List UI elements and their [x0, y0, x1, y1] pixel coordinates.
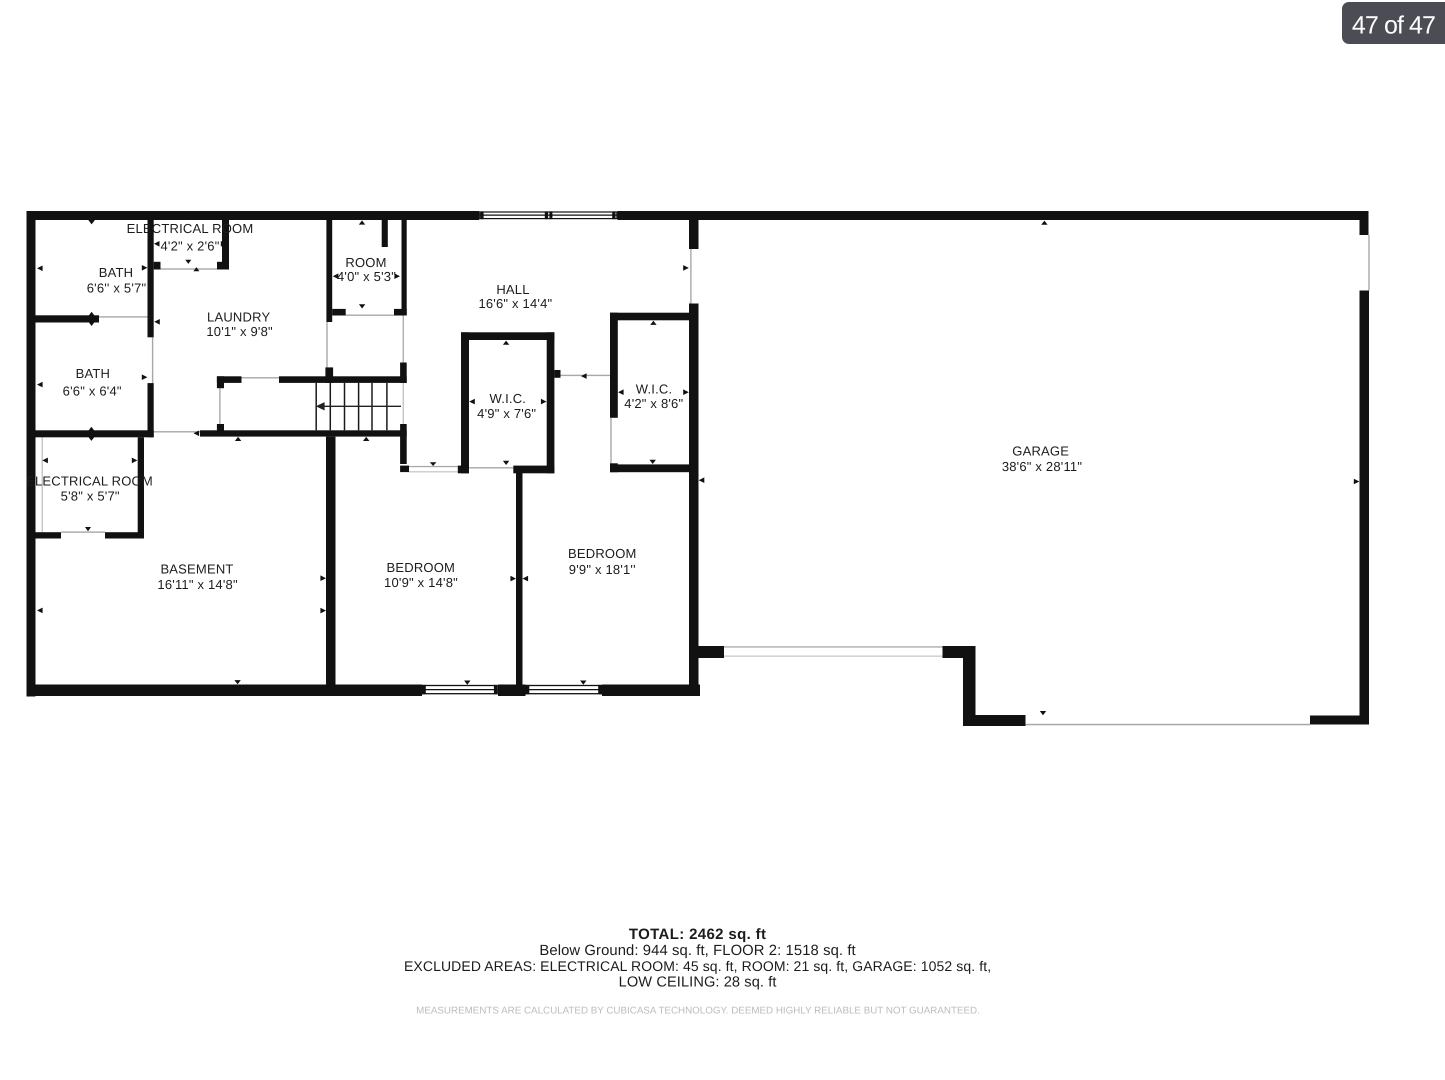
svg-text:4'2" x 8'6": 4'2" x 8'6"	[624, 396, 683, 411]
svg-text:W.I.C.: W.I.C.	[636, 382, 673, 397]
svg-text:LOW CEILING: 28 sq. ft: LOW CEILING: 28 sq. ft	[619, 975, 777, 991]
svg-text:EXCLUDED AREAS: ELECTRICAL ROO: EXCLUDED AREAS: ELECTRICAL ROOM: 45 sq. …	[404, 958, 991, 974]
svg-text:BEDROOM: BEDROOM	[568, 546, 637, 561]
svg-text:BATH: BATH	[99, 265, 134, 280]
svg-text:GARAGE: GARAGE	[1012, 443, 1069, 458]
svg-text:6'6'' x 5'7": 6'6'' x 5'7"	[87, 280, 147, 295]
svg-text:47 of 47: 47 of 47	[1352, 11, 1435, 39]
svg-text:HALL: HALL	[496, 282, 529, 297]
svg-text:BASEMENT: BASEMENT	[160, 562, 233, 577]
svg-text:Below Ground: 944 sq. ft, FLOO: Below Ground: 944 sq. ft, FLOOR 2: 1518 …	[539, 943, 855, 959]
svg-text:16'6" x 14'4": 16'6" x 14'4"	[478, 296, 552, 311]
svg-text:16'11" x 14'8": 16'11" x 14'8"	[157, 577, 238, 592]
svg-text:ROOM: ROOM	[345, 255, 386, 270]
svg-text:4'9" x 7'6": 4'9" x 7'6"	[477, 406, 536, 421]
svg-text:4'2" x 2'6": 4'2" x 2'6"	[160, 238, 219, 253]
svg-text:5'8" x 5'7": 5'8" x 5'7"	[61, 489, 120, 504]
svg-text:ELECTRICAL ROOM: ELECTRICAL ROOM	[26, 474, 153, 489]
svg-text:10'1" x 9'8": 10'1" x 9'8"	[206, 324, 273, 339]
svg-text:6'6" x 6'4": 6'6" x 6'4"	[63, 384, 122, 399]
svg-text:4'0" x 5'3": 4'0" x 5'3"	[337, 269, 396, 284]
svg-text:38'6" x 28'11": 38'6" x 28'11"	[1002, 459, 1083, 474]
svg-text:10'9" x 14'8": 10'9" x 14'8"	[384, 575, 458, 590]
svg-text:BATH: BATH	[76, 366, 111, 381]
svg-text:TOTAL: 2462 sq. ft: TOTAL: 2462 sq. ft	[629, 926, 766, 943]
svg-text:BEDROOM: BEDROOM	[387, 560, 456, 575]
svg-text:ELECTRICAL ROOM: ELECTRICAL ROOM	[127, 221, 254, 236]
svg-text:MEASUREMENTS ARE CALCULATED BY: MEASUREMENTS ARE CALCULATED BY CUBICASA …	[416, 1006, 980, 1017]
svg-text:LAUNDRY: LAUNDRY	[207, 310, 270, 325]
svg-text:9'9" x 18'1'': 9'9" x 18'1''	[569, 562, 636, 577]
svg-text:W.I.C.: W.I.C.	[490, 391, 527, 406]
